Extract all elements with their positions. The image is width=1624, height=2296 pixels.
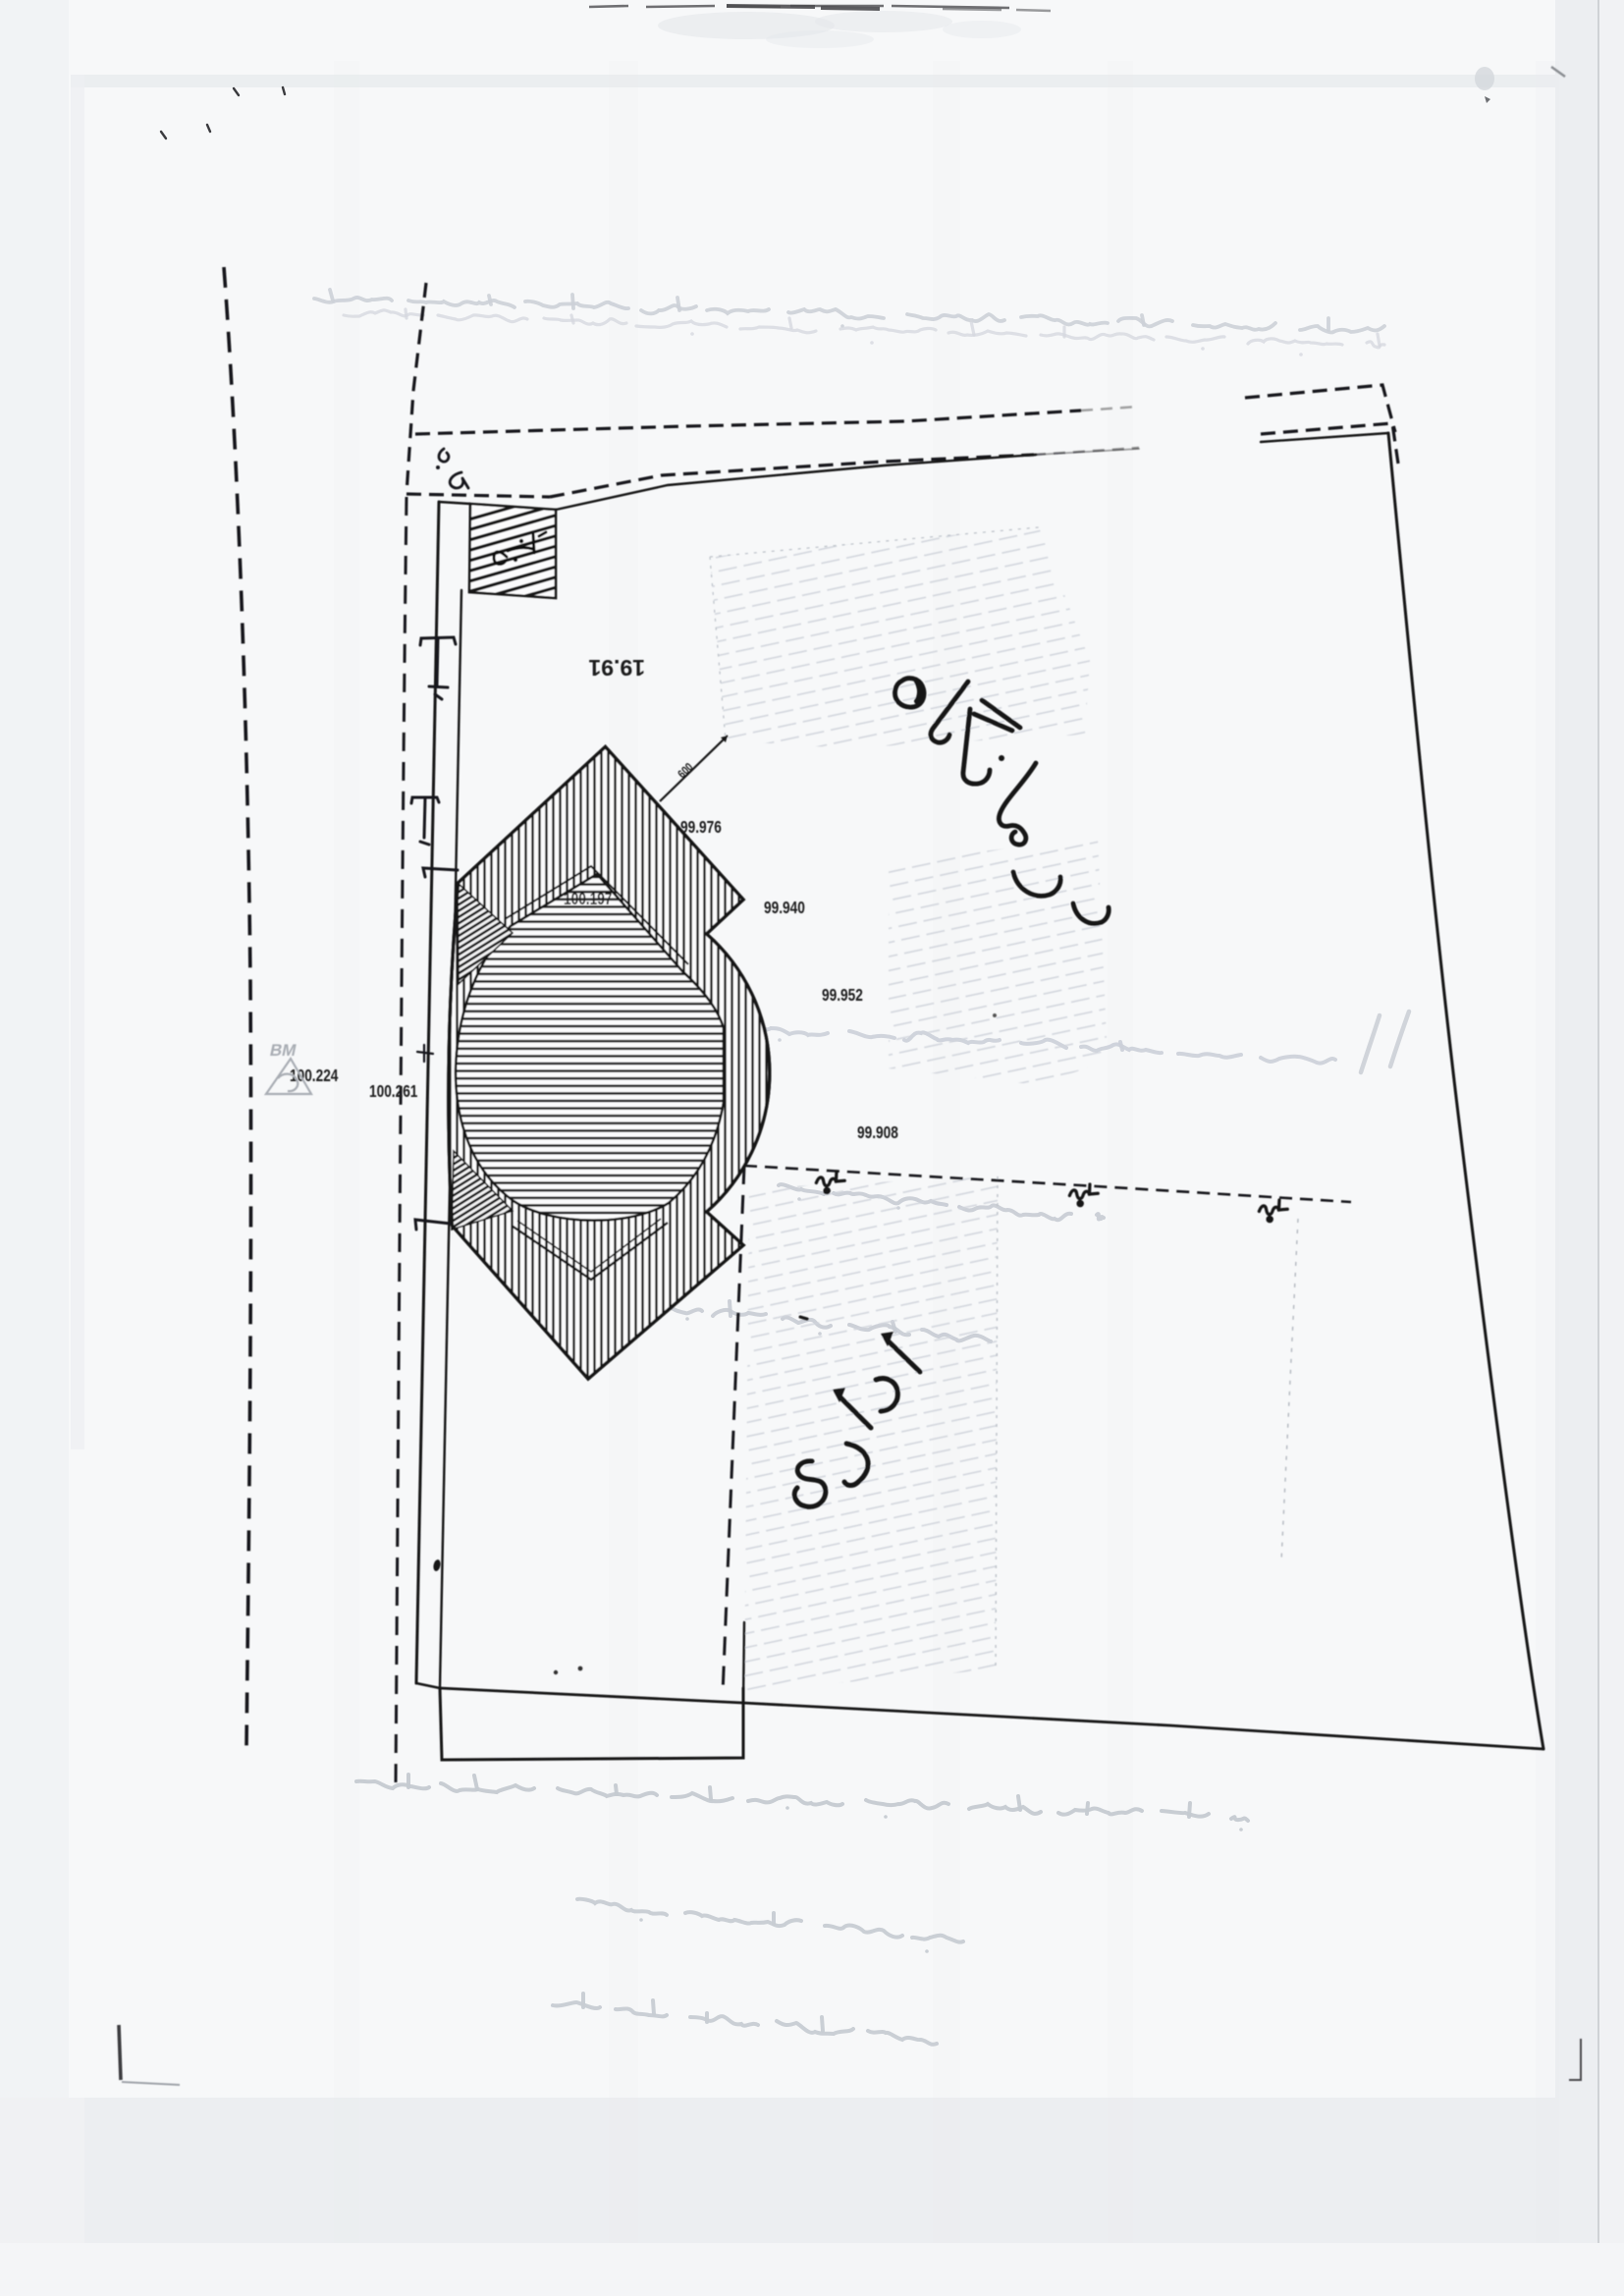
svg-text:100.197: 100.197 [564,890,612,908]
svg-text:19.91: 19.91 [588,655,645,681]
svg-text:BM: BM [268,1040,298,1060]
svg-text:100.261: 100.261 [369,1082,417,1101]
svg-text:99.908: 99.908 [857,1123,898,1142]
svg-text:99.952: 99.952 [822,986,863,1005]
svg-text:99.940: 99.940 [764,899,805,917]
svg-text:99.976: 99.976 [680,818,722,837]
